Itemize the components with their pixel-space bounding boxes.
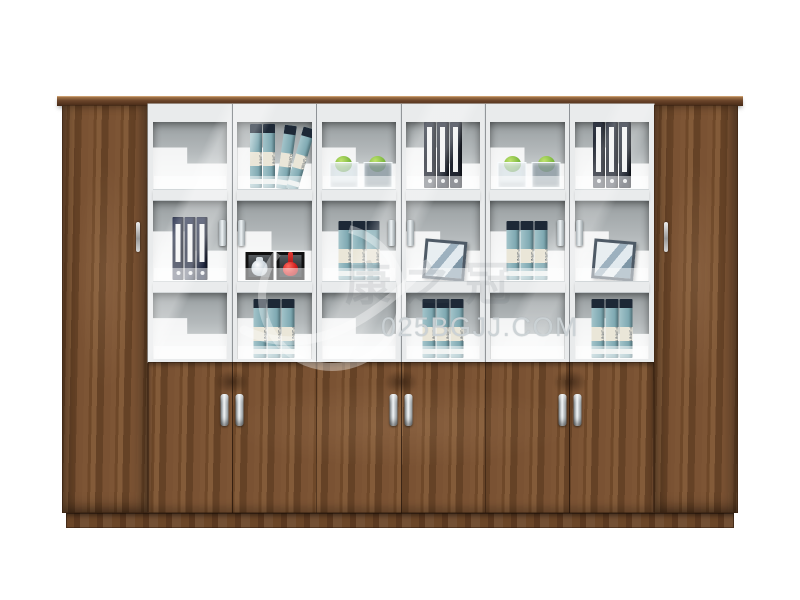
vases <box>244 252 305 280</box>
book-spine-band: FURNITURE <box>535 249 548 263</box>
binders-navy <box>173 217 208 280</box>
right-door-handle <box>664 222 668 252</box>
teal-book: FURNITURE <box>263 124 275 188</box>
product-photo: FURNITUREFURNITUREFURNITUREFURNITUREFURN… <box>0 0 800 600</box>
book-lower-band <box>250 179 262 184</box>
white-vase <box>252 260 268 276</box>
book-lower-band <box>263 179 275 184</box>
book-spine-band: FURNITURE <box>605 327 618 341</box>
book-spine-band: FURNITURE <box>366 249 379 263</box>
book-lower-band <box>521 271 534 276</box>
binders-dark <box>593 122 631 188</box>
binders-dark <box>424 122 462 188</box>
lower-door-handle <box>573 394 581 426</box>
shelf-cell: FURNITUREFURNITUREFURNITURE <box>490 201 564 281</box>
left-wood-door <box>62 105 148 513</box>
glass-door-handles <box>219 220 245 246</box>
binder-finger-hole <box>610 179 614 183</box>
display-cube-white-vase <box>246 252 274 280</box>
binder-finger-hole <box>597 179 601 183</box>
glass-door-handle <box>576 220 583 246</box>
glass-display-section: FURNITUREFURNITUREFURNITUREFURNITUREFURN… <box>148 104 654 362</box>
book-spine-band: FURNITURE <box>437 327 450 341</box>
book-top-cap <box>535 221 548 230</box>
shelf-rail <box>406 189 480 201</box>
book-top-cap <box>250 124 262 133</box>
binder-finger-hole <box>176 271 180 275</box>
binder-spine-label <box>188 224 193 262</box>
glass-cup <box>498 162 527 188</box>
teal-book: FURNITURE <box>507 221 520 280</box>
binder-spine-label <box>176 224 181 262</box>
glass-cup <box>532 162 561 188</box>
book-top-cap <box>591 299 604 308</box>
book-spine-band: FURNITURE <box>451 327 464 341</box>
handle-bars <box>221 394 244 426</box>
book-lower-band <box>451 349 464 354</box>
shelf-cell: FURNITUREFURNITUREFURNITURE <box>575 293 649 359</box>
book-spine-band: FURNITURE <box>268 327 281 341</box>
shelf-cell <box>406 201 480 281</box>
shelf-cell <box>322 122 396 189</box>
leaning-picture-frame <box>422 238 467 281</box>
book-top-cap <box>268 299 281 308</box>
book-top-cap <box>352 221 365 230</box>
book-top-cap <box>254 299 267 308</box>
navy-binder <box>197 217 208 280</box>
book-spine-band: FURNITURE <box>293 153 308 170</box>
shelf-rail <box>237 281 311 293</box>
black-binder <box>450 122 462 188</box>
book-spine-band: FURNITURE <box>254 327 267 341</box>
teal-book: FURNITURE <box>451 299 464 358</box>
lower-door-handle <box>390 394 398 426</box>
shelf-cell <box>490 293 564 359</box>
book-lower-band <box>352 271 365 276</box>
glass-door-gap <box>316 104 317 362</box>
book-top-cap <box>338 221 351 230</box>
shelf-rail <box>322 281 396 293</box>
teal-book: FURNITURE <box>605 299 618 358</box>
green-apple <box>369 156 386 172</box>
lower-door-handle <box>236 394 244 426</box>
teal-book: FURNITURE <box>282 299 295 358</box>
book-top-cap <box>263 124 275 133</box>
teal-book: FURNITURE <box>619 299 632 358</box>
book-lower-band <box>282 349 295 354</box>
right-wood-door <box>654 105 738 513</box>
black-binder <box>424 122 436 188</box>
left-door-handle <box>136 222 140 252</box>
books-teal: FURNITUREFURNITUREFURNITURE <box>338 221 379 280</box>
glass-door-handle <box>407 220 414 246</box>
teal-book: FURNITURE <box>423 299 436 358</box>
shelf-cell <box>575 122 649 189</box>
teal-book: FURNITURE <box>535 221 548 280</box>
shelf-cell: FURNITUREFURNITUREFURNITUREFURNITURE <box>237 122 311 189</box>
shelf-rail <box>153 189 227 201</box>
glass-cup <box>329 162 358 188</box>
cabinet-plinth <box>66 513 734 528</box>
book-spine-band: FURNITURE <box>507 249 520 263</box>
apple-cups <box>494 162 561 188</box>
lower-door-handles <box>553 370 587 428</box>
book-lower-band <box>507 271 520 276</box>
book-lower-band <box>288 179 301 187</box>
teal-book: FURNITURE <box>268 299 281 358</box>
green-apple <box>538 156 555 172</box>
black-binder <box>606 122 618 188</box>
books-teal: FURNITUREFURNITUREFURNITURE <box>423 299 464 358</box>
handle-bars <box>558 394 581 426</box>
books-lean: FURNITUREFURNITUREFURNITUREFURNITURE <box>250 124 298 188</box>
lower-door-handles <box>215 370 249 428</box>
book-top-cap <box>302 126 312 138</box>
book-top-cap <box>619 299 632 308</box>
book-lower-band <box>268 349 281 354</box>
books-teal: FURNITUREFURNITUREFURNITURE <box>591 299 632 358</box>
binder-spine-label <box>453 127 458 172</box>
glass-door-handle <box>557 220 564 246</box>
handle-shadow <box>384 370 418 394</box>
lower-door-seam <box>316 362 317 513</box>
black-binder <box>593 122 605 188</box>
shelf-rail <box>575 189 649 201</box>
binder-finger-hole <box>623 179 627 183</box>
display-cube-red-vase <box>277 252 305 280</box>
shelf-rail <box>490 281 564 293</box>
lower-door-handles <box>384 370 418 428</box>
handle-bars <box>390 394 413 426</box>
green-apple <box>504 156 521 172</box>
lower-wood-doors <box>148 362 654 513</box>
red-vase <box>283 262 298 276</box>
book-top-cap <box>282 299 295 308</box>
green-apple <box>335 156 352 172</box>
glass-door-gap <box>485 104 486 362</box>
book-spine-band: FURNITURE <box>338 249 351 263</box>
book-lower-band <box>366 271 379 276</box>
teal-book: FURNITURE <box>250 124 262 188</box>
teal-book: FURNITURE <box>521 221 534 280</box>
shelf-cell: FURNITUREFURNITUREFURNITURE <box>322 201 396 281</box>
navy-binder <box>173 217 184 280</box>
book-lower-band <box>591 349 604 354</box>
binder-finger-hole <box>428 179 432 183</box>
shelf-rail <box>237 189 311 201</box>
book-top-cap <box>366 221 379 230</box>
book-top-cap <box>507 221 520 230</box>
shelf-cell: FURNITUREFURNITUREFURNITURE <box>406 293 480 359</box>
binder-finger-hole <box>200 271 204 275</box>
book-lower-band <box>437 349 450 354</box>
book-top-cap <box>284 125 297 136</box>
shelf-cell <box>153 293 227 359</box>
binder-spine-label <box>200 224 205 262</box>
book-spine-band: FURNITURE <box>423 327 436 341</box>
shelf-rail <box>406 281 480 293</box>
shelf-cell <box>237 201 311 281</box>
book-spine-band: FURNITURE <box>619 327 632 341</box>
black-binder <box>619 122 631 188</box>
book-top-cap <box>437 299 450 308</box>
glass-cup <box>363 162 392 188</box>
lower-door-handle <box>558 394 566 426</box>
book-lower-band <box>423 349 436 354</box>
book-spine-band: FURNITURE <box>352 249 365 263</box>
book-spine-band: FURNITURE <box>521 249 534 263</box>
shelf-cell: FURNITUREFURNITUREFURNITURE <box>237 293 311 359</box>
leaning-picture-frame <box>591 238 636 281</box>
book-spine-band: FURNITURE <box>263 152 275 166</box>
shelf-cell <box>153 122 227 189</box>
handle-shadow <box>553 370 587 394</box>
binder-spine-label <box>427 127 432 172</box>
book-spine-band: FURNITURE <box>250 152 262 166</box>
shelf-cell <box>322 293 396 359</box>
book-lower-band <box>535 271 548 276</box>
glass-door-handles <box>557 220 583 246</box>
book-top-cap <box>605 299 618 308</box>
glass-door-handles <box>388 220 414 246</box>
book-lower-band <box>277 179 290 186</box>
teal-book: FURNITURE <box>437 299 450 358</box>
book-spine-band: FURNITURE <box>282 327 295 341</box>
teal-book: FURNITURE <box>591 299 604 358</box>
books-teal: FURNITUREFURNITUREFURNITURE <box>507 221 548 280</box>
glass-door-handle <box>219 220 226 246</box>
binder-spine-label <box>622 127 627 172</box>
binder-finger-hole <box>441 179 445 183</box>
book-lower-band <box>619 349 632 354</box>
binder-spine-label <box>596 127 601 172</box>
apple-cups <box>325 162 392 188</box>
shelf-cell <box>406 122 480 189</box>
binder-spine-label <box>440 127 445 172</box>
shelf-rail <box>490 189 564 201</box>
teal-book: FURNITURE <box>254 299 267 358</box>
frame <box>422 240 464 280</box>
shelf-rail <box>575 281 649 293</box>
teal-book: FURNITURE <box>352 221 365 280</box>
book-lower-band <box>254 349 267 354</box>
lower-door-handle <box>405 394 413 426</box>
shelf-rail <box>153 281 227 293</box>
shelf-cell <box>153 201 227 281</box>
book-top-cap <box>451 299 464 308</box>
navy-binder <box>185 217 196 280</box>
shelf-rail <box>322 189 396 201</box>
glass-door-handle <box>388 220 395 246</box>
binder-finger-hole <box>454 179 458 183</box>
lower-door-seam <box>485 362 486 513</box>
shelf-cell <box>575 201 649 281</box>
binder-finger-hole <box>188 271 192 275</box>
book-lower-band <box>605 349 618 354</box>
book-spine-band: FURNITURE <box>591 327 604 341</box>
teal-book: FURNITURE <box>366 221 379 280</box>
binder-spine-label <box>609 127 614 172</box>
frame <box>591 240 633 280</box>
lower-door-handle <box>221 394 229 426</box>
book-top-cap <box>423 299 436 308</box>
shelf-cell <box>490 122 564 189</box>
teal-book: FURNITURE <box>338 221 351 280</box>
books-teal: FURNITUREFURNITUREFURNITURE <box>254 299 295 358</box>
book-lower-band <box>338 271 351 276</box>
handle-shadow <box>215 370 249 394</box>
glass-door-handle <box>238 220 245 246</box>
book-top-cap <box>521 221 534 230</box>
black-binder <box>437 122 449 188</box>
